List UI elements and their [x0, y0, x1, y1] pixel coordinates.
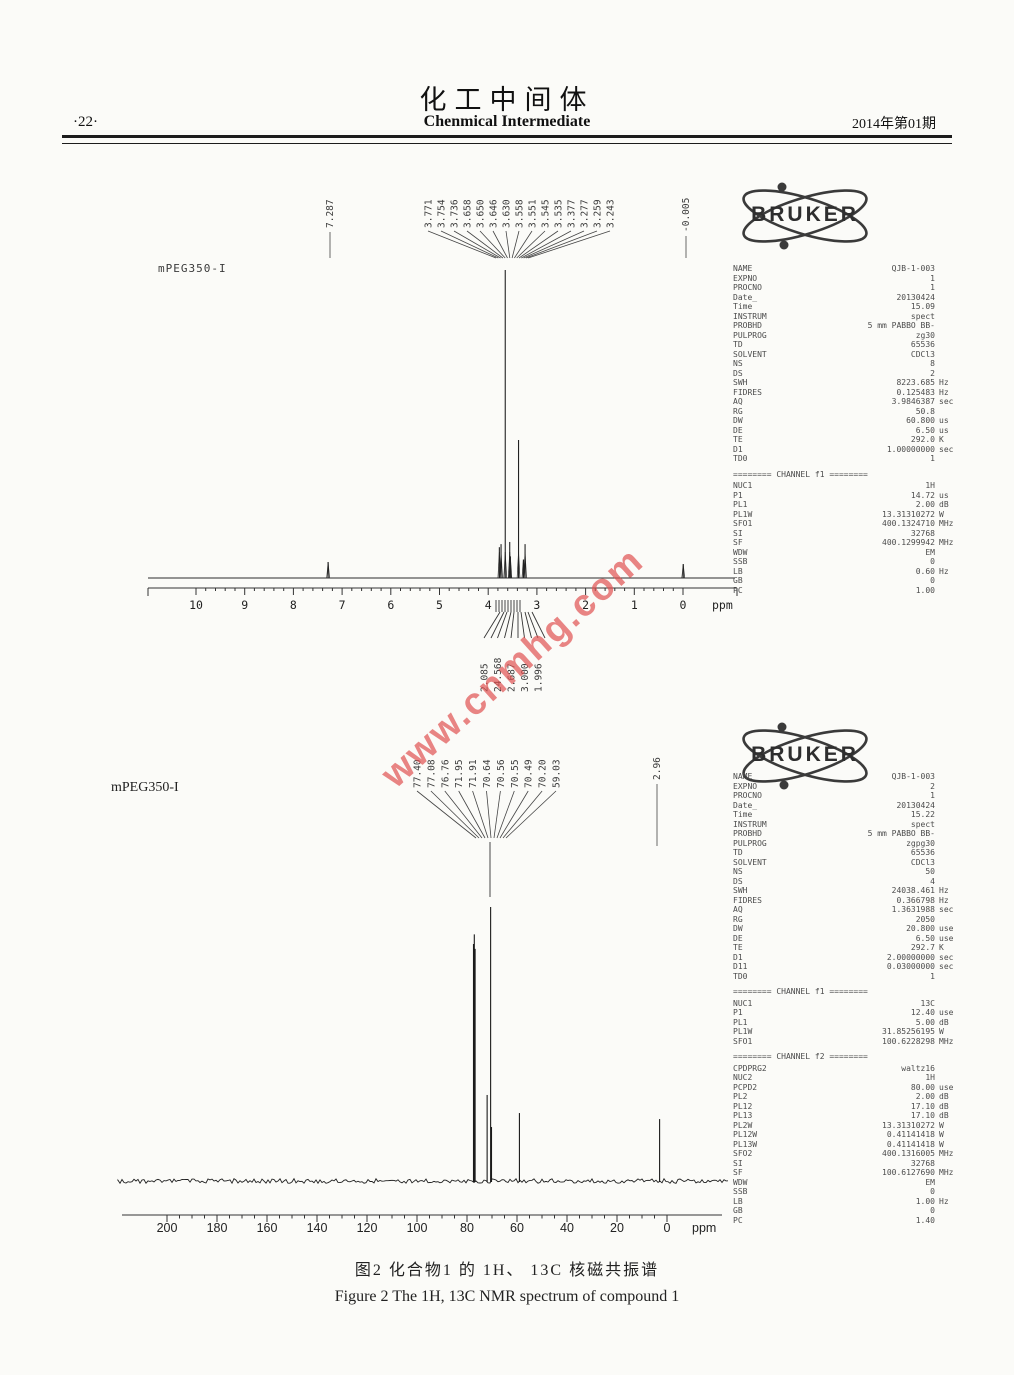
param-cell	[935, 529, 971, 539]
axis-tick-label: 80	[460, 1221, 474, 1235]
param-cell: 2	[795, 782, 935, 792]
leader-line	[503, 791, 542, 838]
param-cell: MHz	[935, 1149, 971, 1159]
param-cell	[935, 772, 971, 782]
param-row: PL12W0.41141418W	[733, 1130, 971, 1140]
param-cell: PROBHD	[733, 829, 795, 839]
param-cell	[935, 858, 971, 868]
param-cell: 0	[795, 1187, 935, 1197]
param-cell	[935, 283, 971, 293]
param-cell: 31.85256195	[795, 1027, 935, 1037]
param-row: SFO2400.1316005MHz	[733, 1149, 971, 1159]
param-cell: D1	[733, 953, 795, 963]
param-row: SOLVENTCDCl3	[733, 350, 971, 360]
peak-label: 70.49	[524, 759, 535, 788]
peak-label: 70.55	[510, 759, 521, 788]
param-cell: PROCNO	[733, 283, 795, 293]
axis-tick-label: 180	[207, 1221, 228, 1235]
param-cell: SWH	[733, 378, 795, 388]
param-cell: INSTRUM	[733, 312, 795, 322]
param-cell: sec	[935, 905, 971, 915]
param-cell: DS	[733, 877, 795, 887]
param-cell: 6.50	[795, 426, 935, 436]
param-cell: W	[935, 1130, 971, 1140]
axis-tick-label: 1	[631, 598, 638, 612]
leader-line	[506, 231, 510, 258]
param-cell	[935, 548, 971, 558]
param-row: DS4	[733, 877, 971, 887]
axis-tick-label: 3	[533, 598, 540, 612]
param-cell	[935, 407, 971, 417]
param-row: FIDRES0.366798Hz	[733, 896, 971, 906]
param-row: PC1.40	[733, 1216, 971, 1226]
peak-label: 76.76	[440, 759, 451, 788]
param-cell: dB	[935, 1102, 971, 1112]
param-cell	[935, 340, 971, 350]
param-cell	[935, 782, 971, 792]
param-cell: P1	[733, 1008, 795, 1018]
param-cell: GB	[733, 576, 795, 586]
param-cell: PL12	[733, 1102, 795, 1112]
param-cell: PL13W	[733, 1140, 795, 1150]
param-cell: zg30	[795, 331, 935, 341]
param-cell: PULPROG	[733, 839, 795, 849]
param-cell: Date_	[733, 801, 795, 811]
param-cell	[935, 867, 971, 877]
param-cell: us	[935, 416, 971, 426]
param-row: Date_20130424	[733, 801, 971, 811]
axis-unit-label: ppm	[692, 1221, 716, 1235]
axis-tick-label: 0	[680, 598, 687, 612]
axis-tick-label: 10	[189, 598, 203, 612]
param-cell: 20130424	[795, 801, 935, 811]
param-cell	[935, 586, 971, 596]
param-row: DE6.50us	[733, 426, 971, 436]
param-cell: dB	[935, 1092, 971, 1102]
param-cell: 13.31310272	[795, 1121, 935, 1131]
param-row: PL15.00dB	[733, 1018, 971, 1028]
peak-label: 3.658	[463, 199, 474, 228]
param-cell: SOLVENT	[733, 350, 795, 360]
param-cell: 1.00000000	[795, 445, 935, 455]
param-cell: Hz	[935, 896, 971, 906]
axis-tick-label: 5	[436, 598, 443, 612]
param-cell: NAME	[733, 772, 795, 782]
param-cell: INSTRUM	[733, 820, 795, 830]
param-cell: spect	[795, 820, 935, 830]
param-cell: 1H	[795, 481, 935, 491]
param-cell: TD	[733, 848, 795, 858]
param-row: PL2W13.31310272W	[733, 1121, 971, 1131]
param-cell: 4	[795, 877, 935, 887]
axis-tick-label: 40	[560, 1221, 574, 1235]
param-cell	[935, 481, 971, 491]
param-cell: Time	[733, 302, 795, 312]
param-cell: D1	[733, 445, 795, 455]
param-cell	[935, 848, 971, 858]
param-cell: Date_	[733, 293, 795, 303]
param-row: DE6.50use	[733, 934, 971, 944]
peak-label: 2.96	[652, 757, 663, 780]
axis-tick-label: 9	[241, 598, 248, 612]
param-cell: PROBHD	[733, 321, 795, 331]
param-cell: PROCNO	[733, 791, 795, 801]
param-cell: 100.6228298	[795, 1037, 935, 1047]
param-cell	[935, 359, 971, 369]
param-cell	[935, 839, 971, 849]
peak-label: 7.287	[325, 199, 336, 228]
axis-tick-label: 120	[357, 1221, 378, 1235]
peak-label: -0.005	[681, 198, 692, 232]
param-row: RG50.8	[733, 407, 971, 417]
param-cell: 0.03000000	[795, 962, 935, 972]
param-cell	[935, 293, 971, 303]
param-cell: NS	[733, 359, 795, 369]
journal-title-cn: 化工中间体	[0, 78, 1014, 117]
param-cell: SFO1	[733, 519, 795, 529]
peak-label: 70.20	[538, 759, 549, 788]
leader-line	[526, 231, 597, 258]
issue-label: 2014年第01期	[852, 113, 936, 133]
param-row: NS50	[733, 867, 971, 877]
param-row: PULPROGzg30	[733, 331, 971, 341]
leader-line	[500, 791, 528, 838]
param-section-header: ======== CHANNEL f2 ========	[733, 1052, 971, 1062]
param-section-header: ======== CHANNEL f1 ========	[733, 987, 971, 997]
param-cell	[935, 454, 971, 464]
param-row: SI32768	[733, 529, 971, 539]
param-row: INSTRUMspect	[733, 820, 971, 830]
param-cell: use	[935, 1083, 971, 1093]
param-cell: QJB-1-003	[795, 264, 935, 274]
param-row: AQ1.3631988sec	[733, 905, 971, 915]
param-cell: W	[935, 1140, 971, 1150]
axis-tick-label: 20	[610, 1221, 624, 1235]
param-cell: NS	[733, 867, 795, 877]
param-cell: PCPD2	[733, 1083, 795, 1093]
param-cell: SFO2	[733, 1149, 795, 1159]
param-cell: waltz16	[795, 1064, 935, 1074]
leader-line	[445, 791, 482, 838]
leader-line	[428, 231, 496, 258]
param-cell: 60.800	[795, 416, 935, 426]
header-rule-thin	[62, 143, 952, 144]
axis-unit-label: ppm	[712, 598, 733, 612]
integral-leader	[511, 612, 514, 638]
param-row: PROCNO1	[733, 791, 971, 801]
param-cell: dB	[935, 1018, 971, 1028]
param-cell: TE	[733, 435, 795, 445]
param-cell: CDCl3	[795, 858, 935, 868]
param-cell: QJB-1-003	[795, 772, 935, 782]
param-cell: 13C	[795, 999, 935, 1009]
param-cell: 12.40	[795, 1008, 935, 1018]
param-cell: LB	[733, 1197, 795, 1207]
param-cell: 3.9846387	[795, 397, 935, 407]
leader-line	[417, 791, 476, 838]
param-cell: spect	[795, 312, 935, 322]
peak-label: 71.91	[468, 759, 479, 788]
param-row: TD01	[733, 972, 971, 982]
param-cell: SFO1	[733, 1037, 795, 1047]
leader-line	[521, 231, 571, 258]
param-cell	[935, 264, 971, 274]
param-cell: NUC2	[733, 1073, 795, 1083]
acquisition-params-1h: NAMEQJB-1-003EXPNO1PROCNO1Date_20130424T…	[733, 264, 971, 595]
param-row: TD65536	[733, 848, 971, 858]
param-cell	[935, 576, 971, 586]
param-row: WDWEM	[733, 1178, 971, 1188]
param-cell: PC	[733, 586, 795, 596]
param-row: AQ3.9846387sec	[733, 397, 971, 407]
param-row: GB0	[733, 576, 971, 586]
param-cell: 292.7	[795, 943, 935, 953]
param-cell: dB	[935, 1111, 971, 1121]
param-cell	[935, 321, 971, 331]
param-row: SOLVENTCDCl3	[733, 858, 971, 868]
peak-label: 71.95	[454, 759, 465, 788]
param-cell: RG	[733, 407, 795, 417]
param-cell: AQ	[733, 905, 795, 915]
param-cell	[935, 801, 971, 811]
param-cell: 15.22	[795, 810, 935, 820]
peak-label: 3.754	[437, 199, 448, 228]
param-cell: 1.40	[795, 1216, 935, 1226]
param-cell: DW	[733, 416, 795, 426]
param-cell: DW	[733, 924, 795, 934]
param-row: TE292.7K	[733, 943, 971, 953]
axis-tick-label: 140	[307, 1221, 328, 1235]
param-row: Time15.22	[733, 810, 971, 820]
param-cell: sec	[935, 445, 971, 455]
param-row: NS8	[733, 359, 971, 369]
figure-caption-en: Figure 2 The 1H, 13C NMR spectrum of com…	[0, 1288, 1014, 1306]
param-cell: 1	[795, 274, 935, 284]
param-cell: K	[935, 435, 971, 445]
param-cell: W	[935, 1027, 971, 1037]
param-row: Date_20130424	[733, 293, 971, 303]
param-cell	[935, 829, 971, 839]
param-cell: PL1	[733, 1018, 795, 1028]
axis-tick-label: 7	[339, 598, 346, 612]
param-cell: 400.1299942	[795, 538, 935, 548]
axis-tick-label: 0	[664, 1221, 671, 1235]
param-cell	[935, 877, 971, 887]
param-row: PL1W13.31310272W	[733, 510, 971, 520]
param-cell: us	[935, 491, 971, 501]
param-cell: PL2	[733, 1092, 795, 1102]
param-cell: D11	[733, 962, 795, 972]
param-cell: SSB	[733, 1187, 795, 1197]
param-cell: 65536	[795, 340, 935, 350]
param-cell: PULPROG	[733, 331, 795, 341]
param-row: DS2	[733, 369, 971, 379]
param-cell	[935, 1064, 971, 1074]
param-row: FIDRES0.125483Hz	[733, 388, 971, 398]
param-cell: 8223.685	[795, 378, 935, 388]
param-cell: PL1	[733, 500, 795, 510]
param-cell: MHz	[935, 1168, 971, 1178]
param-row: SFO1100.6228298MHz	[733, 1037, 971, 1047]
param-cell: 32768	[795, 1159, 935, 1169]
param-cell: AQ	[733, 397, 795, 407]
param-row: SWH24038.461Hz	[733, 886, 971, 896]
param-cell: sec	[935, 397, 971, 407]
param-cell: Hz	[935, 567, 971, 577]
param-cell: 1	[795, 283, 935, 293]
param-row: DW60.800us	[733, 416, 971, 426]
leader-line	[480, 231, 505, 258]
param-cell: 2.00	[795, 500, 935, 510]
param-cell: DE	[733, 426, 795, 436]
param-cell: 0	[795, 576, 935, 586]
axis-1h	[148, 588, 737, 596]
peak-label: 70.56	[496, 759, 507, 788]
spectrum-13c-plot: 77.4077.0876.7671.9571.9170.6470.5670.55…	[110, 718, 740, 1245]
param-cell	[935, 1178, 971, 1188]
axis-tick-label: 6	[387, 598, 394, 612]
param-cell	[935, 1216, 971, 1226]
param-cell: PL1W	[733, 510, 795, 520]
param-cell: Hz	[935, 1197, 971, 1207]
param-cell: CPDPRG2	[733, 1064, 795, 1074]
param-row: NAMEQJB-1-003	[733, 772, 971, 782]
param-cell: use	[935, 924, 971, 934]
leader-line	[524, 231, 584, 258]
param-row: WDWEM	[733, 548, 971, 558]
param-cell	[935, 1159, 971, 1169]
param-cell: K	[935, 943, 971, 953]
param-cell: us	[935, 426, 971, 436]
param-row: D110.03000000sec	[733, 962, 971, 972]
param-row: TE292.0K	[733, 435, 971, 445]
param-cell: use	[935, 934, 971, 944]
param-cell: Hz	[935, 378, 971, 388]
param-cell: 2	[795, 369, 935, 379]
param-cell: 65536	[795, 848, 935, 858]
param-cell: 24038.461	[795, 886, 935, 896]
param-row: NAMEQJB-1-003	[733, 264, 971, 274]
peak-label: 70.64	[482, 759, 493, 788]
param-cell: 2050	[795, 915, 935, 925]
param-cell: 1H	[795, 1073, 935, 1083]
param-row: PL1W31.85256195W	[733, 1027, 971, 1037]
header-rule-thick	[62, 135, 952, 138]
param-cell	[935, 557, 971, 567]
peak-label: 59.03	[552, 759, 563, 788]
param-row: NUC21H	[733, 1073, 971, 1083]
figure-caption-cn: 图2 化合物1 的 1H、 13C 核磁共振谱	[0, 1256, 1014, 1280]
param-cell: sec	[935, 953, 971, 963]
param-row: PL1217.10dB	[733, 1102, 971, 1112]
axis-tick-label: 100	[407, 1221, 428, 1235]
param-cell: DS	[733, 369, 795, 379]
param-cell	[935, 791, 971, 801]
param-cell: use	[935, 1008, 971, 1018]
param-cell: 50	[795, 867, 935, 877]
param-row: PROCNO1	[733, 283, 971, 293]
axis-tick-label: 8	[290, 598, 297, 612]
peak-label: 3.650	[476, 199, 487, 228]
param-row: LB0.60Hz	[733, 567, 971, 577]
param-cell: 0.125483	[795, 388, 935, 398]
param-cell: 15.09	[795, 302, 935, 312]
param-cell: 0.41141418	[795, 1130, 935, 1140]
param-cell: SF	[733, 1168, 795, 1178]
param-cell: SWH	[733, 886, 795, 896]
param-cell: TE	[733, 943, 795, 953]
param-cell: TD0	[733, 454, 795, 464]
param-cell: CDCl3	[795, 350, 935, 360]
acquisition-params-13c: NAMEQJB-1-003EXPNO2PROCNO1Date_20130424T…	[733, 772, 971, 1225]
param-cell: SI	[733, 1159, 795, 1169]
param-cell: 17.10	[795, 1102, 935, 1112]
param-cell	[935, 312, 971, 322]
param-cell: 0.366798	[795, 896, 935, 906]
param-cell: PC	[733, 1216, 795, 1226]
axis-tick-label: 200	[157, 1221, 178, 1235]
bruker-logo-text: BRUKER	[751, 203, 859, 227]
param-row: NUC11H	[733, 481, 971, 491]
param-row: SI32768	[733, 1159, 971, 1169]
param-cell: 50.8	[795, 407, 935, 417]
peak-label: 3.736	[450, 199, 461, 228]
param-cell: zgpg30	[795, 839, 935, 849]
peak-label: 3.377	[567, 199, 578, 228]
param-cell: 292.0	[795, 435, 935, 445]
param-cell: PL12W	[733, 1130, 795, 1140]
param-cell: FIDRES	[733, 896, 795, 906]
param-cell: 1	[795, 972, 935, 982]
param-cell: W	[935, 510, 971, 520]
param-cell: 5.00	[795, 1018, 935, 1028]
param-cell: W	[935, 1121, 971, 1131]
param-cell: WDW	[733, 1178, 795, 1188]
leader-line	[519, 231, 558, 258]
peak-label: 3.551	[528, 199, 539, 228]
param-cell: 400.1324710	[795, 519, 935, 529]
param-cell: 1.3631988	[795, 905, 935, 915]
param-row: INSTRUMspect	[733, 312, 971, 322]
param-cell: PL1W	[733, 1027, 795, 1037]
param-row: PL22.00dB	[733, 1092, 971, 1102]
param-cell: DE	[733, 934, 795, 944]
param-cell	[935, 302, 971, 312]
param-cell: SF	[733, 538, 795, 548]
param-cell	[935, 369, 971, 379]
param-cell: 1	[795, 791, 935, 801]
bruker-logo: BRUKER	[735, 176, 875, 256]
param-cell: EM	[795, 548, 935, 558]
param-cell: NUC1	[733, 999, 795, 1009]
peak-label: 3.630	[502, 199, 513, 228]
param-cell	[935, 331, 971, 341]
param-cell: dB	[935, 500, 971, 510]
param-cell: FIDRES	[733, 388, 795, 398]
param-cell: LB	[733, 567, 795, 577]
peak-label: 3.558	[515, 199, 526, 228]
param-cell: Hz	[935, 388, 971, 398]
param-row: PC1.00	[733, 586, 971, 596]
param-cell: 13.31310272	[795, 510, 935, 520]
param-cell: NUC1	[733, 481, 795, 491]
param-cell: PL2W	[733, 1121, 795, 1131]
param-cell: 17.10	[795, 1111, 935, 1121]
leader-line	[487, 791, 492, 838]
param-cell: 400.1316005	[795, 1149, 935, 1159]
param-cell	[935, 999, 971, 1009]
leader-line	[512, 231, 519, 258]
